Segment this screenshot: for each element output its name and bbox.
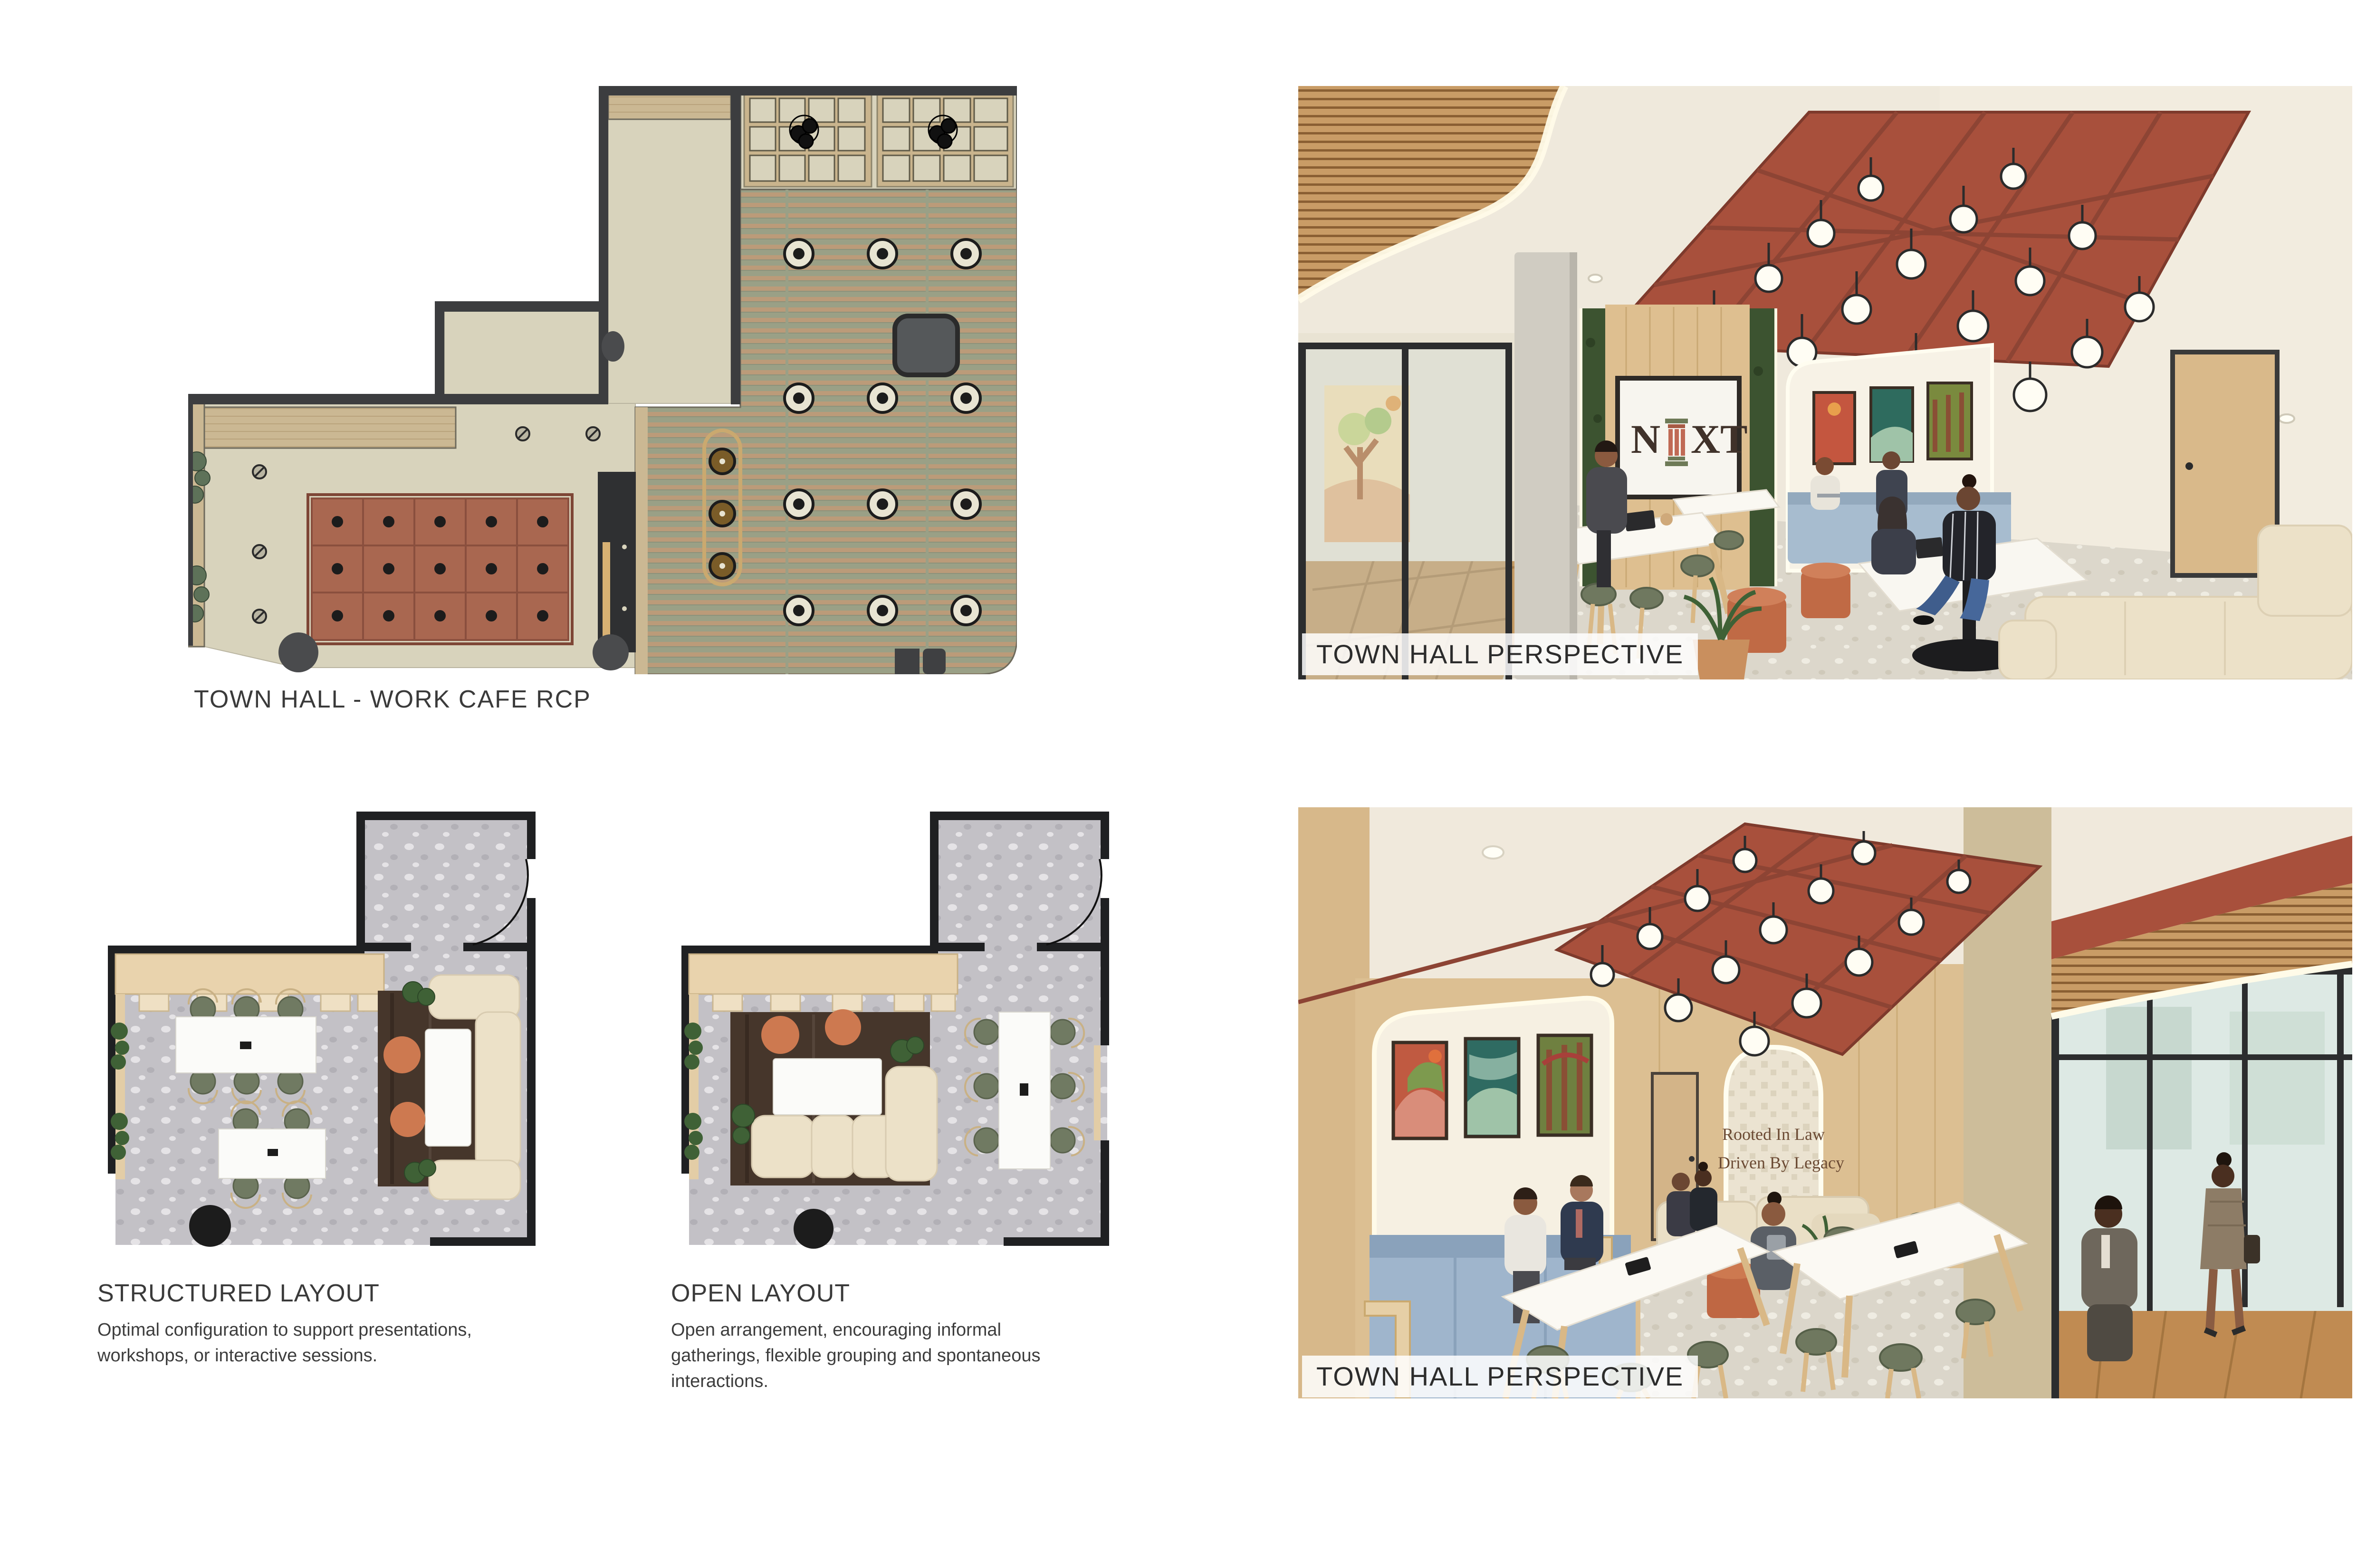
beam-ceiling — [740, 90, 1017, 190]
lounge-zone — [730, 1009, 937, 1186]
open-plan-drawing — [671, 808, 1126, 1262]
quote-line-2: Driven By Legacy — [1718, 1153, 1844, 1172]
coffee-table — [425, 1029, 471, 1146]
recessed-spotlight — [1483, 846, 1504, 859]
ceiling-fixture-small — [923, 649, 946, 674]
render-label: TOWN HALL PERSPECTIVE — [1302, 1356, 1698, 1397]
work-table-1 — [176, 989, 316, 1103]
wood-soffit — [197, 407, 456, 448]
led-strip — [1774, 308, 1777, 586]
column-shade — [1570, 252, 1577, 679]
logo-letter-n: N — [1631, 416, 1660, 462]
small-room-ceiling — [444, 311, 599, 396]
rcp-floor-plan-drawing — [188, 86, 1017, 674]
render-label: TOWN HALL PERSPECTIVE — [1302, 633, 1698, 675]
concrete-column — [1514, 252, 1577, 679]
perspective-top-scene: N XT — [1298, 86, 2352, 679]
structured-layout-description: Optimal configuration to support present… — [97, 1317, 554, 1368]
wall-wood-strip — [1094, 1045, 1101, 1140]
vestibule-floor — [938, 819, 1101, 951]
ceiling-fixture — [895, 316, 958, 375]
perspective-bottom-scene: Rooted In Law Driven By Legacy — [1298, 807, 2352, 1398]
lounge-zone — [378, 975, 520, 1199]
perspective-render-bottom: Rooted In Law Driven By Legacy — [1298, 807, 2352, 1398]
column — [794, 1209, 834, 1249]
structured-layout-heading: STRUCTURED LAYOUT — [97, 1279, 380, 1308]
perspective-render-top: N XT — [1298, 86, 2352, 679]
logo-screen: N XT — [1618, 378, 1747, 497]
column — [189, 1205, 231, 1247]
logo-letters-xt: XT — [1691, 416, 1747, 462]
open-layout-plan — [671, 808, 1126, 1262]
work-table — [965, 1012, 1084, 1169]
corridor — [1298, 333, 1517, 679]
quote-line-1: Rooted In Law — [1722, 1125, 1825, 1144]
vestibule-floor — [364, 819, 527, 951]
tall-room-ceiling — [608, 95, 731, 403]
rcp-floor-plan — [188, 86, 1017, 674]
media-wall — [598, 472, 636, 652]
open-layout-description: Open arrangement, encouraging informal g… — [671, 1317, 1089, 1394]
column-icon — [1665, 419, 1688, 466]
open-layout-heading: OPEN LAYOUT — [671, 1279, 850, 1308]
rcp-title: TOWN HALL - WORK CAFE RCP — [194, 685, 591, 714]
briefcase — [2244, 1235, 2260, 1263]
ceiling-fixture-small — [895, 649, 920, 674]
structured-plan-drawing — [97, 808, 552, 1262]
structured-layout-plan — [97, 808, 552, 1262]
coffee-table — [773, 1059, 881, 1115]
